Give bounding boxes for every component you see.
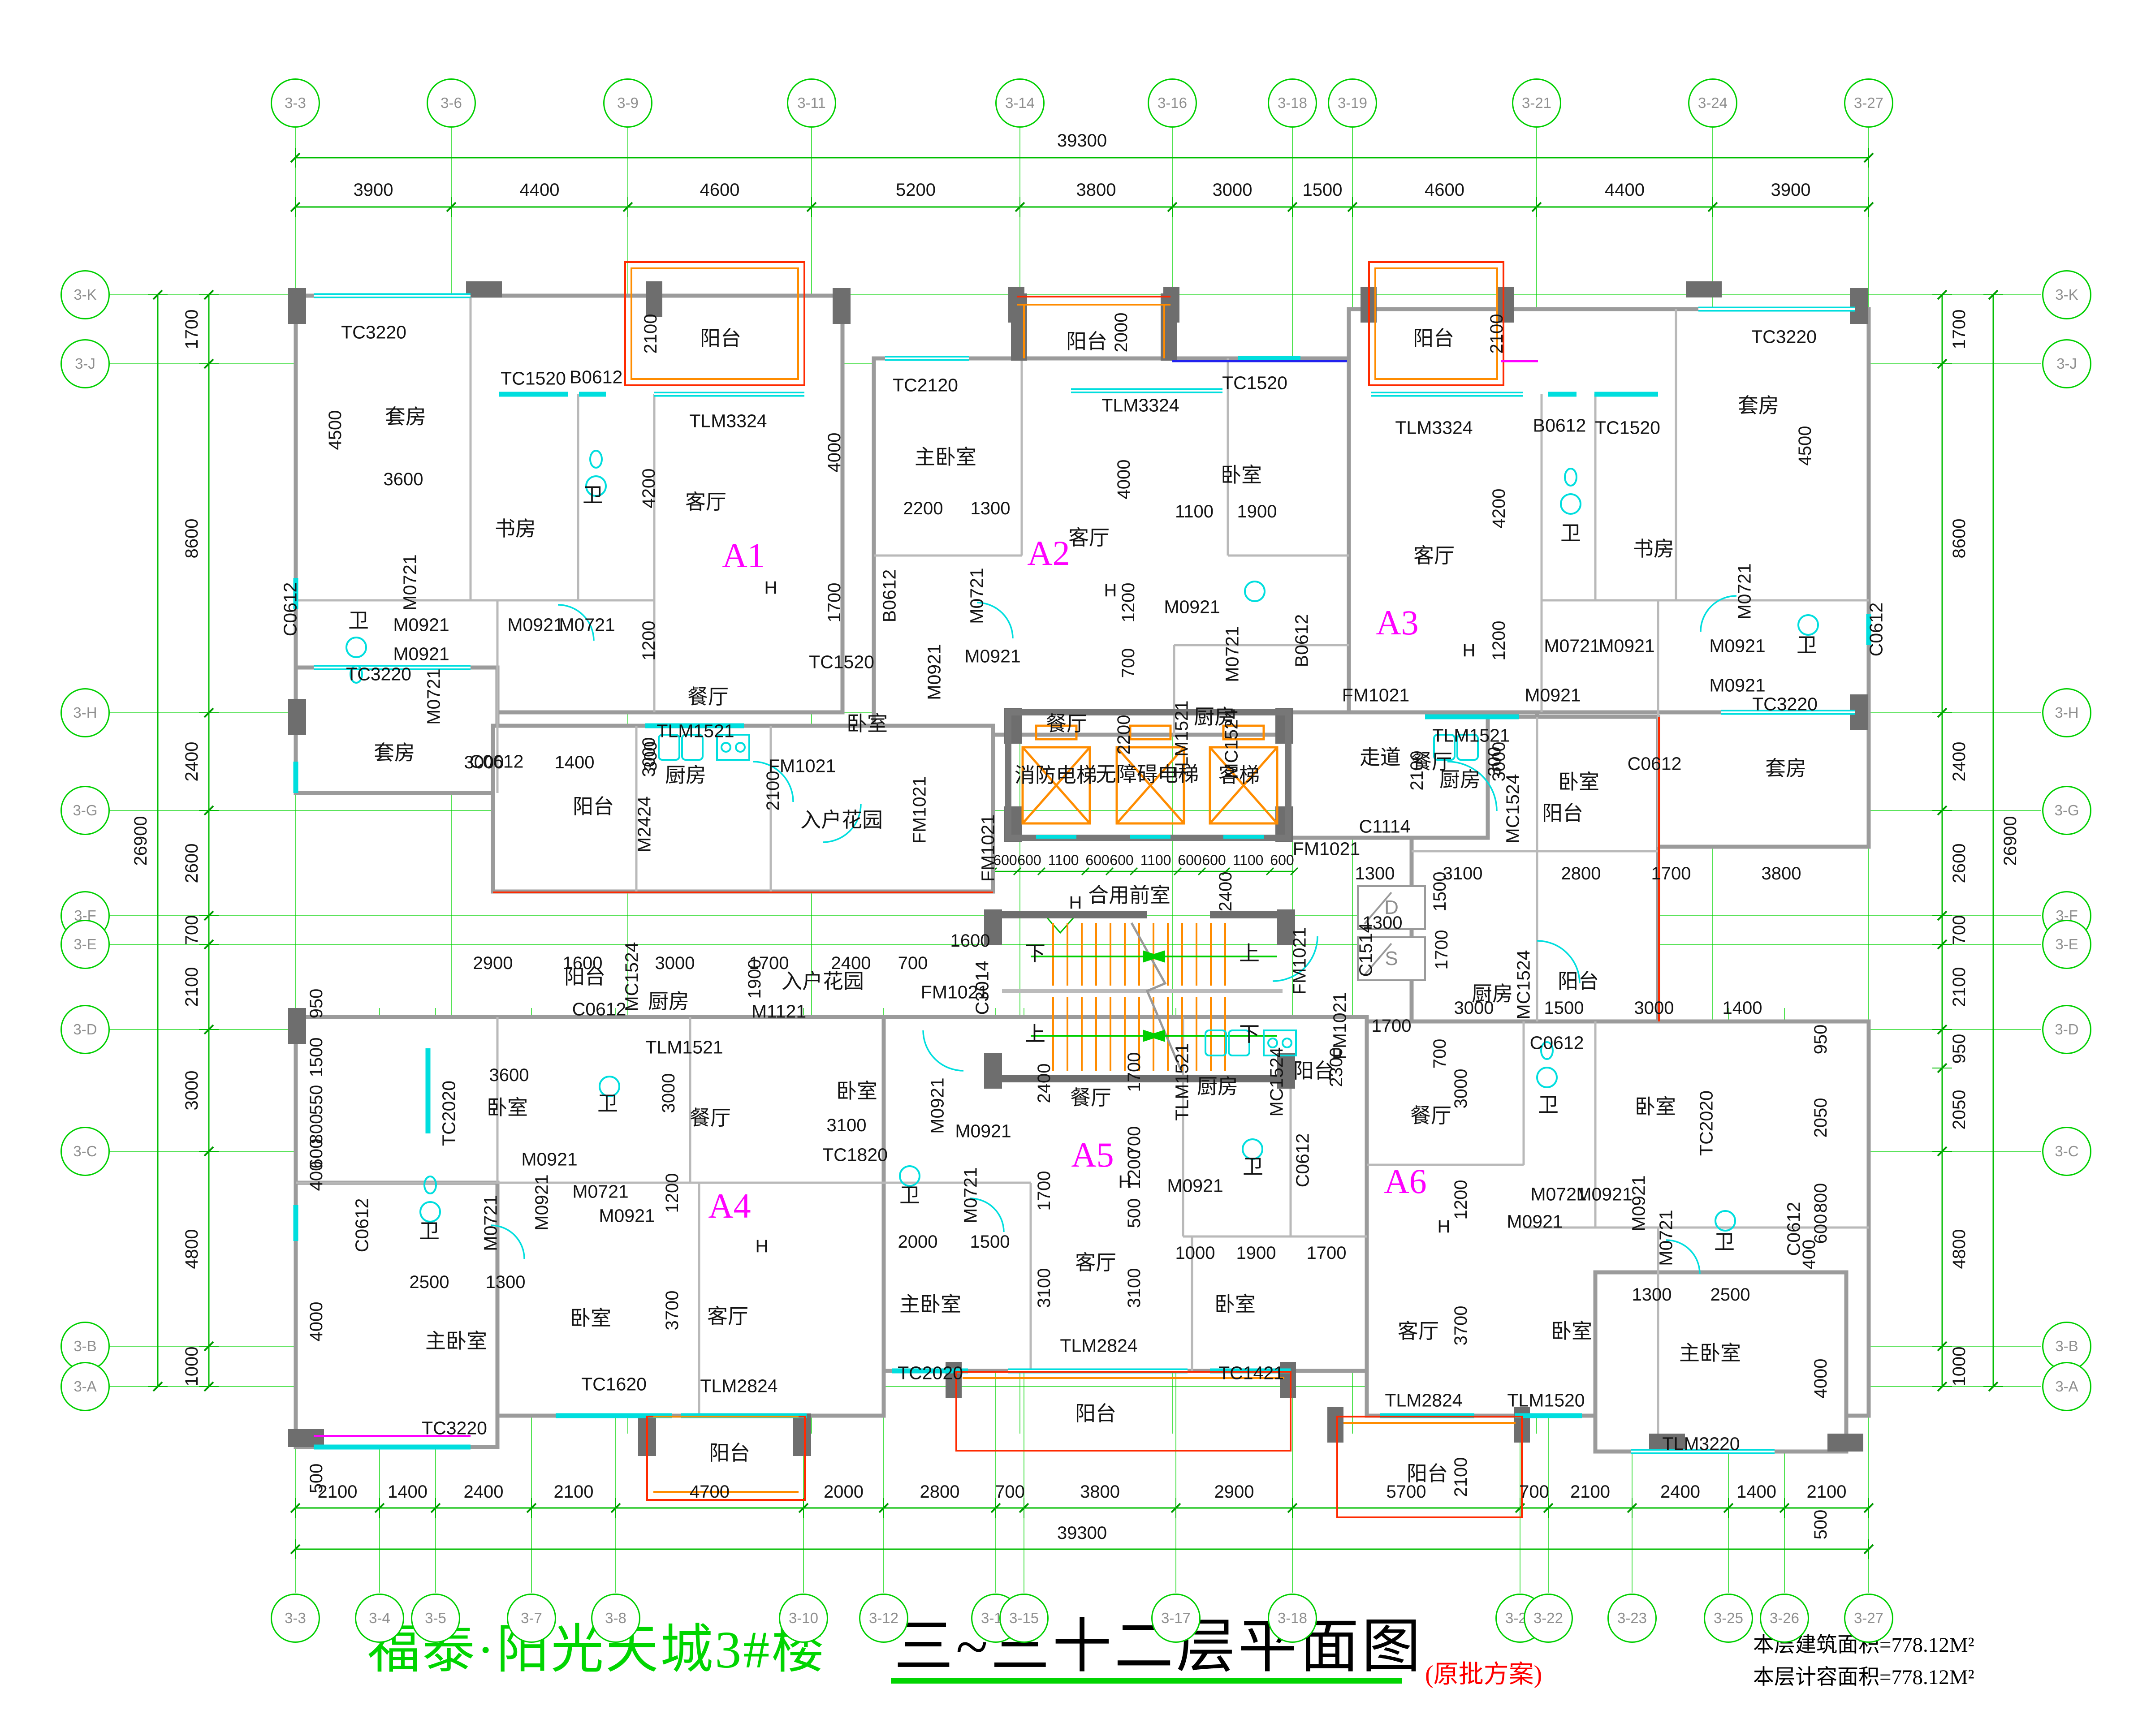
drawing-text: 700 — [1119, 648, 1137, 678]
drawing-text: 4000 — [1115, 460, 1133, 500]
room-label: 卧室 — [570, 1308, 611, 1328]
drawing-text: 2400 — [1950, 742, 1968, 782]
drawing-text: 2400 — [1217, 872, 1235, 912]
drawing-text: TC1421 — [1218, 1364, 1284, 1383]
unit-label: A6 — [1384, 1164, 1426, 1199]
drawing-text: 3800 — [1080, 1483, 1120, 1501]
grid-bubble-3-J: 3-J — [60, 339, 110, 388]
grid-bubble-3-J: 3-J — [2042, 339, 2091, 388]
drawing-text: H — [1438, 1218, 1451, 1236]
drawing-text: 3100 — [1125, 1268, 1143, 1308]
drawing-text: MC1524 — [623, 942, 641, 1012]
drawing-text: 8600 — [183, 518, 201, 558]
grid-bubble-3-3: 3-3 — [271, 78, 320, 128]
drawing-text: 1700 — [1307, 1244, 1347, 1262]
drawing-text: 1100 — [1140, 853, 1171, 867]
room-label: 套房 — [1738, 395, 1779, 416]
drawing-text: 1500 — [970, 1233, 1010, 1251]
room-label: 厨房 — [1197, 1076, 1238, 1097]
scheme-note: (原批方案) — [1425, 1654, 1542, 1690]
drawing-text: TLM3220 — [1662, 1435, 1740, 1453]
drawing-text: 4600 — [1425, 181, 1464, 199]
drawing-text: M0921 — [925, 644, 944, 700]
drawing-text: 2000 — [898, 1233, 938, 1251]
room-label: 卧室 — [487, 1097, 528, 1118]
room-label: 主卧室 — [915, 447, 976, 467]
unit-label: A3 — [1376, 605, 1418, 640]
drawing-text: TC2020 — [440, 1081, 458, 1146]
room-label: 入户花园 — [782, 971, 864, 991]
drawing-text: M0921 — [599, 1207, 655, 1225]
drawing-text: 2100 — [1950, 967, 1968, 1007]
drawing-text: 1900 — [746, 959, 764, 999]
drawing-text: 39300 — [1057, 132, 1107, 150]
grid-bubble-3-K: 3-K — [2042, 270, 2091, 319]
grid-bubble-3-10: 3-10 — [779, 1594, 828, 1643]
grid-bubble-3-8: 3-8 — [591, 1594, 640, 1643]
grid-bubble-3-H: 3-H — [60, 688, 110, 737]
room-label: 上 — [1239, 943, 1260, 964]
drawing-text: 1000 — [183, 1347, 201, 1387]
drawing-text: M0921 — [393, 645, 449, 663]
drawing-text: 4800 — [1950, 1229, 1968, 1269]
drawing-text: 950 — [1950, 1034, 1968, 1064]
drawing-text: 4700 — [690, 1483, 730, 1501]
grid-bubble-3-16: 3-16 — [1148, 78, 1197, 128]
drawing-text: 1700 — [1035, 1171, 1053, 1211]
drawing-text: 1500 — [1544, 999, 1584, 1017]
grid-bubble-3-D: 3-D — [2042, 1005, 2091, 1054]
room-label: 入户花园 — [800, 810, 883, 830]
grid-bubble-3-23: 3-23 — [1607, 1594, 1657, 1643]
drawing-text: 600 — [1178, 853, 1201, 867]
room-label: 卧室 — [1558, 771, 1599, 792]
grid-bubble-3-12: 3-12 — [859, 1594, 908, 1643]
drawing-text: TLM2824 — [1385, 1391, 1462, 1410]
room-label: 厨房 — [1194, 706, 1235, 727]
room-label: 卧室 — [836, 1081, 877, 1101]
drawing-text: TC1620 — [581, 1375, 647, 1394]
drawing-text: 2000 — [824, 1483, 864, 1501]
drawing-text: M0921 — [1164, 598, 1220, 616]
unit-label: A4 — [708, 1189, 751, 1223]
room-label: 卧室 — [1635, 1096, 1676, 1117]
room-label: 餐厅 — [690, 1107, 731, 1128]
grid-bubble-3-K: 3-K — [60, 270, 110, 319]
drawing-text: 2100 — [183, 967, 201, 1007]
drawing-text: 1500 — [1303, 181, 1343, 199]
drawing-text: TC1520 — [1595, 419, 1660, 437]
drawing-text: 4500 — [1796, 426, 1814, 466]
room-label: 卫 — [1538, 1094, 1559, 1115]
room-label: 厨房 — [648, 991, 689, 1012]
drawing-text: 2400 — [1660, 1483, 1700, 1501]
drawing-text: TC2020 — [898, 1364, 963, 1383]
drawing-text: 950 — [307, 989, 325, 1019]
drawing-text: M0721 — [572, 1183, 628, 1201]
grid-bubble-3-A: 3-A — [60, 1362, 110, 1411]
drawing-text: 1100 — [1175, 503, 1214, 521]
drawing-text: 1000 — [1175, 1244, 1215, 1262]
drawing-text: 8600 — [1950, 518, 1968, 558]
room-label: 卫 — [899, 1185, 920, 1206]
room-label: 客梯 — [1218, 765, 1260, 785]
drawing-text: TLM1521 — [645, 1038, 723, 1057]
room-label: 合用前室 — [1088, 885, 1171, 905]
drawing-text: 2400 — [464, 1483, 504, 1501]
drawing-text: 26900 — [132, 816, 150, 866]
drawing-text: TC1820 — [822, 1146, 888, 1164]
drawing-text: 1400 — [1723, 999, 1762, 1017]
room-label: 卫 — [348, 610, 369, 631]
drawing-text: M0921 — [1598, 637, 1654, 655]
drawing-text: 1700 — [825, 583, 843, 623]
drawing-text: 300 — [642, 741, 660, 771]
drawing-text: FM1021 — [921, 983, 988, 1002]
grid-bubble-3-19: 3-19 — [1328, 78, 1377, 128]
grid-bubble-3-24: 3-24 — [1688, 78, 1737, 128]
drawing-text: 3700 — [1452, 1306, 1470, 1346]
drawing-text: 2100 — [1488, 314, 1506, 354]
counted-area-text: 本层计容面积=778.12M² — [1753, 1659, 1974, 1690]
drawing-text: 1200 — [640, 621, 658, 661]
drawing-text: 2100 — [764, 771, 782, 811]
drawing-text: H — [1463, 642, 1476, 659]
unit-label: A1 — [722, 538, 765, 573]
drawing-text: 1100 — [1233, 853, 1264, 867]
drawing-text: 1700 — [1950, 310, 1968, 349]
drawing-text: 2100 — [1408, 751, 1426, 791]
room-label: 阳台 — [1558, 971, 1599, 991]
drawing-text: M0921 — [1576, 1185, 1632, 1204]
unit-label: A2 — [1027, 536, 1070, 571]
room-label: 阳台 — [1066, 331, 1107, 352]
drawing-text: M2424 — [635, 796, 654, 852]
drawing-text: FM1021 — [1291, 927, 1309, 995]
drawing-text: FM1021 — [1293, 840, 1360, 858]
drawing-text: TLM1521 — [1173, 1043, 1192, 1120]
grid-bubble-3-21: 3-21 — [1512, 78, 1561, 128]
room-label: 阳台 — [564, 966, 605, 987]
drawing-text: 5200 — [896, 181, 936, 199]
drawing-text: 4500 — [326, 410, 344, 450]
drawing-text: 39300 — [1057, 1524, 1107, 1542]
drawing-text: 2200 — [903, 500, 943, 517]
drawing-text: 1000 — [1950, 1347, 1968, 1387]
grid-bubble-3-C: 3-C — [2042, 1127, 2091, 1176]
drawing-text: 2400 — [1035, 1064, 1053, 1103]
drawing-text: 3000 — [655, 954, 695, 972]
drawing-text: 1700 — [1125, 1052, 1143, 1092]
drawing-text: 600 — [1017, 853, 1041, 867]
drawing-text: 3000 — [1452, 1069, 1470, 1109]
room-label: 卫 — [1560, 523, 1581, 543]
drawing-text: M0921 — [1709, 637, 1765, 655]
drawing-text: 1900 — [1236, 1244, 1276, 1262]
grid-bubble-3-G: 3-G — [60, 786, 110, 835]
room-label: 上 — [1025, 1024, 1045, 1044]
drawing-text: 600 — [1110, 853, 1133, 867]
grid-bubble-3-E: 3-E — [60, 920, 110, 969]
room-label: 阳台 — [1413, 328, 1454, 349]
room-label: 下 — [1239, 1024, 1260, 1044]
room-label: 卫 — [583, 485, 603, 505]
drawing-text: 1700 — [1433, 930, 1451, 970]
room-label: 套房 — [385, 406, 426, 427]
grid-bubble-3-9: 3-9 — [603, 78, 652, 128]
grid-bubble-3-17: 3-17 — [1151, 1594, 1201, 1643]
drawing-text: M0921 — [393, 616, 449, 634]
grid-bubble-3-4: 3-4 — [355, 1594, 404, 1643]
room-label: 厨房 — [665, 765, 706, 785]
drawing-text: 1400 — [555, 754, 595, 771]
drawing-text: TLM1521 — [1432, 727, 1510, 745]
drawing-text: M0721 — [482, 1195, 500, 1251]
drawing-text: M0721 — [401, 554, 419, 610]
drawing-text: 700 — [183, 915, 201, 945]
drawing-text: 4600 — [700, 181, 740, 199]
drawing-text: 700 — [1950, 915, 1968, 945]
drawing-text: 800 — [1812, 1183, 1830, 1213]
drawing-text: TLM3324 — [1395, 419, 1473, 437]
drawing-text: TC3220 — [1752, 695, 1818, 714]
drawing-text: M0921 — [964, 647, 1020, 666]
drawing-text: TC1520 — [809, 653, 874, 672]
grid-bubble-3-5: 3-5 — [411, 1594, 460, 1643]
drawing-text: MC1524 — [1268, 1047, 1286, 1117]
room-label: 客厅 — [707, 1306, 748, 1327]
room-label: 主卧室 — [899, 1294, 961, 1314]
drawing-text: 500 — [307, 1464, 325, 1494]
drawing-text: 4200 — [1490, 489, 1508, 529]
grid-bubble-3-27: 3-27 — [1844, 78, 1893, 128]
drawing-text: M0921 — [929, 1077, 947, 1133]
room-label: 卧室 — [1221, 465, 1262, 485]
drawing-text: H — [1119, 1173, 1132, 1191]
room-label: 餐厅 — [1046, 713, 1087, 734]
drawing-text: 1700 — [183, 310, 201, 349]
drawing-text: M0721 — [1544, 637, 1600, 655]
drawing-text: TLM2824 — [700, 1377, 777, 1396]
drawing-text: M0721 — [1657, 1210, 1676, 1266]
drawing-text: 950 — [1812, 1025, 1830, 1055]
drawing-text: 2200 — [1115, 715, 1133, 755]
room-label: 厨房 — [1439, 769, 1481, 790]
drawing-text: 1200 — [1452, 1180, 1470, 1220]
drawing-text: 3100 — [1035, 1268, 1053, 1308]
wall-blocks — [296, 296, 1869, 1452]
drawing-text: 1500 — [307, 1038, 325, 1077]
room-label: 卧室 — [1214, 1294, 1256, 1314]
drawing-text: B0612 — [881, 569, 899, 623]
room-label: 卫 — [1714, 1232, 1735, 1252]
grid-bubble-3-26: 3-26 — [1760, 1594, 1809, 1643]
drawing-text: 26900 — [2001, 816, 2019, 866]
drawing-text: 600 — [993, 853, 1017, 867]
drawing-text: 2800 — [920, 1483, 960, 1501]
shaft-label: D — [1384, 898, 1399, 918]
drawing-text: 3100 — [827, 1116, 867, 1134]
drawing-text: 1600 — [950, 932, 990, 950]
room-label: 客厅 — [1398, 1321, 1439, 1341]
drawing-text: 4200 — [640, 469, 658, 508]
drawing-text: 1700 — [1651, 865, 1691, 883]
drawing-text: 3600 — [489, 1066, 529, 1084]
drawing-text: 4400 — [520, 181, 560, 199]
grid-bubble-3-C: 3-C — [60, 1127, 110, 1176]
drawing-text: TC3220 — [422, 1419, 487, 1438]
grid-bubble-3-D: 3-D — [60, 1005, 110, 1054]
drawing-text: 2900 — [473, 954, 513, 972]
drawing-text: M0921 — [955, 1122, 1011, 1141]
room-label: 卫 — [1243, 1156, 1263, 1177]
room-label: 下 — [1025, 943, 1045, 964]
drawing-text: H — [765, 579, 777, 597]
grid-bubble-3-E: 3-E — [2042, 920, 2091, 969]
grid-bubble-3-6: 3-6 — [427, 78, 476, 128]
grid-bubble-3-H: 3-H — [2042, 688, 2091, 737]
grid-bubble-3-25: 3-25 — [1704, 1594, 1753, 1643]
drawing-text: M0921 — [533, 1174, 551, 1230]
grid-bubble-3-11: 3-11 — [787, 78, 836, 128]
drawing-text: C1114 — [1359, 818, 1411, 836]
drawing-text: TLM1521 — [657, 722, 734, 741]
drawing-text: 2500 — [410, 1273, 449, 1291]
room-label: 主卧室 — [1679, 1343, 1741, 1363]
grid-bubble-3-18: 3-18 — [1268, 1594, 1317, 1643]
room-label: 书房 — [495, 518, 536, 539]
room-label: 阳台 — [709, 1443, 750, 1463]
drawing-text: 1300 — [1632, 1286, 1672, 1304]
grid-bubble-3-A: 3-A — [2042, 1362, 2091, 1411]
floor-plan-sheet: 3900440046005200380030001500460044003900… — [0, 0, 2151, 1736]
drawing-text: H — [1069, 894, 1082, 912]
room-label: 客厅 — [1413, 545, 1455, 566]
drawing-text: C0612 — [470, 753, 524, 771]
drawing-text: 2050 — [1812, 1098, 1830, 1138]
drawing-text: 600 — [1270, 853, 1294, 867]
drawing-text: H — [756, 1237, 769, 1255]
drawing-text: 3600 — [384, 470, 423, 488]
drawing-text: TLM1520 — [1507, 1391, 1585, 1410]
drawing-text: 600 — [1202, 853, 1226, 867]
room-label: 卧室 — [1551, 1321, 1592, 1341]
drawing-text: 3000 — [1213, 181, 1253, 199]
room-label: 消防电梯 — [1015, 765, 1097, 785]
drawing-text: 2100 — [1807, 1483, 1847, 1501]
drawing-text: C0612 — [1628, 755, 1682, 773]
drawing-text: M0921 — [1630, 1175, 1648, 1231]
grid-bubble-3-15: 3-15 — [999, 1594, 1049, 1643]
drawing-text: TC3220 — [1751, 328, 1817, 346]
drawing-text: M0921 — [1709, 676, 1765, 695]
drawing-text: 2050 — [1950, 1090, 1968, 1130]
drawing-text: M1121 — [752, 1003, 806, 1021]
drawing-text: M0921 — [1167, 1177, 1223, 1195]
room-label: 餐厅 — [687, 686, 729, 707]
drawing-text: MC1524 — [1504, 774, 1522, 844]
drawing-text: TC3220 — [341, 323, 406, 342]
drawing-text: 1200 — [663, 1173, 681, 1213]
drawing-text: B0612 — [570, 368, 623, 387]
drawing-text: 700 — [898, 954, 928, 972]
drawing-text: 4000 — [825, 433, 843, 473]
sheet-title-underline — [891, 1678, 1402, 1684]
drawing-text: 1100 — [1048, 853, 1079, 867]
drawing-text: 1300 — [1355, 865, 1395, 883]
grid-bubble-3-18: 3-18 — [1268, 78, 1317, 128]
drawing-text: 3000 — [660, 1073, 678, 1113]
drawing-text: 3000 — [1634, 999, 1674, 1017]
drawing-text: 1700 — [1372, 1017, 1412, 1035]
drawing-text: M0721 — [1223, 626, 1242, 682]
room-label: 套房 — [1765, 758, 1806, 779]
room-label: 客厅 — [1075, 1252, 1116, 1273]
room-label: 阳台 — [1075, 1403, 1116, 1424]
drawing-text: M0721 — [968, 568, 986, 624]
drawing-text: FM1021 — [911, 776, 929, 844]
room-label: 阳台 — [700, 328, 741, 349]
drawing-text: 500 — [1125, 1198, 1143, 1228]
shaft-label: S — [1385, 949, 1398, 969]
drawing-text: 1400 — [388, 1483, 428, 1501]
drawing-text: M0921 — [521, 1150, 577, 1169]
drawing-text: 2500 — [1710, 1286, 1750, 1304]
drawing-text: M0721 — [425, 668, 443, 724]
drawing-text: FM1021 — [979, 814, 998, 882]
drawing-text: 4000 — [1812, 1359, 1830, 1399]
drawing-text: 1300 — [486, 1273, 526, 1291]
drawing-text: C0612 — [353, 1198, 371, 1253]
drawing-text: 1900 — [1237, 503, 1277, 521]
drawing-text: 4400 — [1605, 181, 1645, 199]
drawing-text: M0921 — [1507, 1213, 1563, 1231]
drawing-text: TLM3324 — [689, 412, 767, 431]
drawing-text: 400 — [1800, 1240, 1818, 1270]
room-label: 卫 — [1797, 635, 1817, 655]
drawing-text: 3900 — [1771, 181, 1811, 199]
drawing-text: 400 — [307, 1161, 325, 1191]
drawing-text: TLM3324 — [1101, 396, 1179, 415]
room-label: 无障碍电梯 — [1096, 764, 1199, 784]
drawing-text: 2800 — [1561, 865, 1601, 883]
drawing-text: TC2120 — [893, 376, 958, 395]
drawing-text: M0721 — [962, 1167, 980, 1223]
drawing-text: 500 — [1812, 1510, 1830, 1540]
grid-bubble-3-14: 3-14 — [995, 78, 1045, 128]
drawing-text: 2100 — [642, 314, 660, 354]
drawing-text: 4000 — [307, 1302, 325, 1342]
drawing-text: 550 — [307, 1085, 325, 1115]
drawing-text: 1200 — [1119, 583, 1137, 623]
drawing-text: TC2020 — [1697, 1090, 1716, 1156]
room-label: 客厅 — [685, 491, 726, 512]
room-label: 阳台 — [1407, 1463, 1448, 1484]
drawing-text: 2400 — [183, 742, 201, 782]
drawing-text: 2600 — [1950, 843, 1968, 883]
drawing-text: 2300 — [1327, 1047, 1345, 1087]
room-label: 主卧室 — [425, 1331, 487, 1351]
drawing-text: TC3220 — [346, 665, 411, 684]
grid-bubble-3-27: 3-27 — [1844, 1594, 1893, 1643]
unit-label: A5 — [1071, 1137, 1114, 1172]
drawing-text: C0612 — [572, 1000, 626, 1019]
drawing-text: TC1520 — [501, 370, 566, 388]
room-label: 阳台 — [573, 796, 614, 817]
drawing-text: 1400 — [1736, 1483, 1776, 1501]
grid-bubble-3-3: 3-3 — [271, 1594, 320, 1643]
drawing-text: FM1021 — [1342, 686, 1409, 705]
